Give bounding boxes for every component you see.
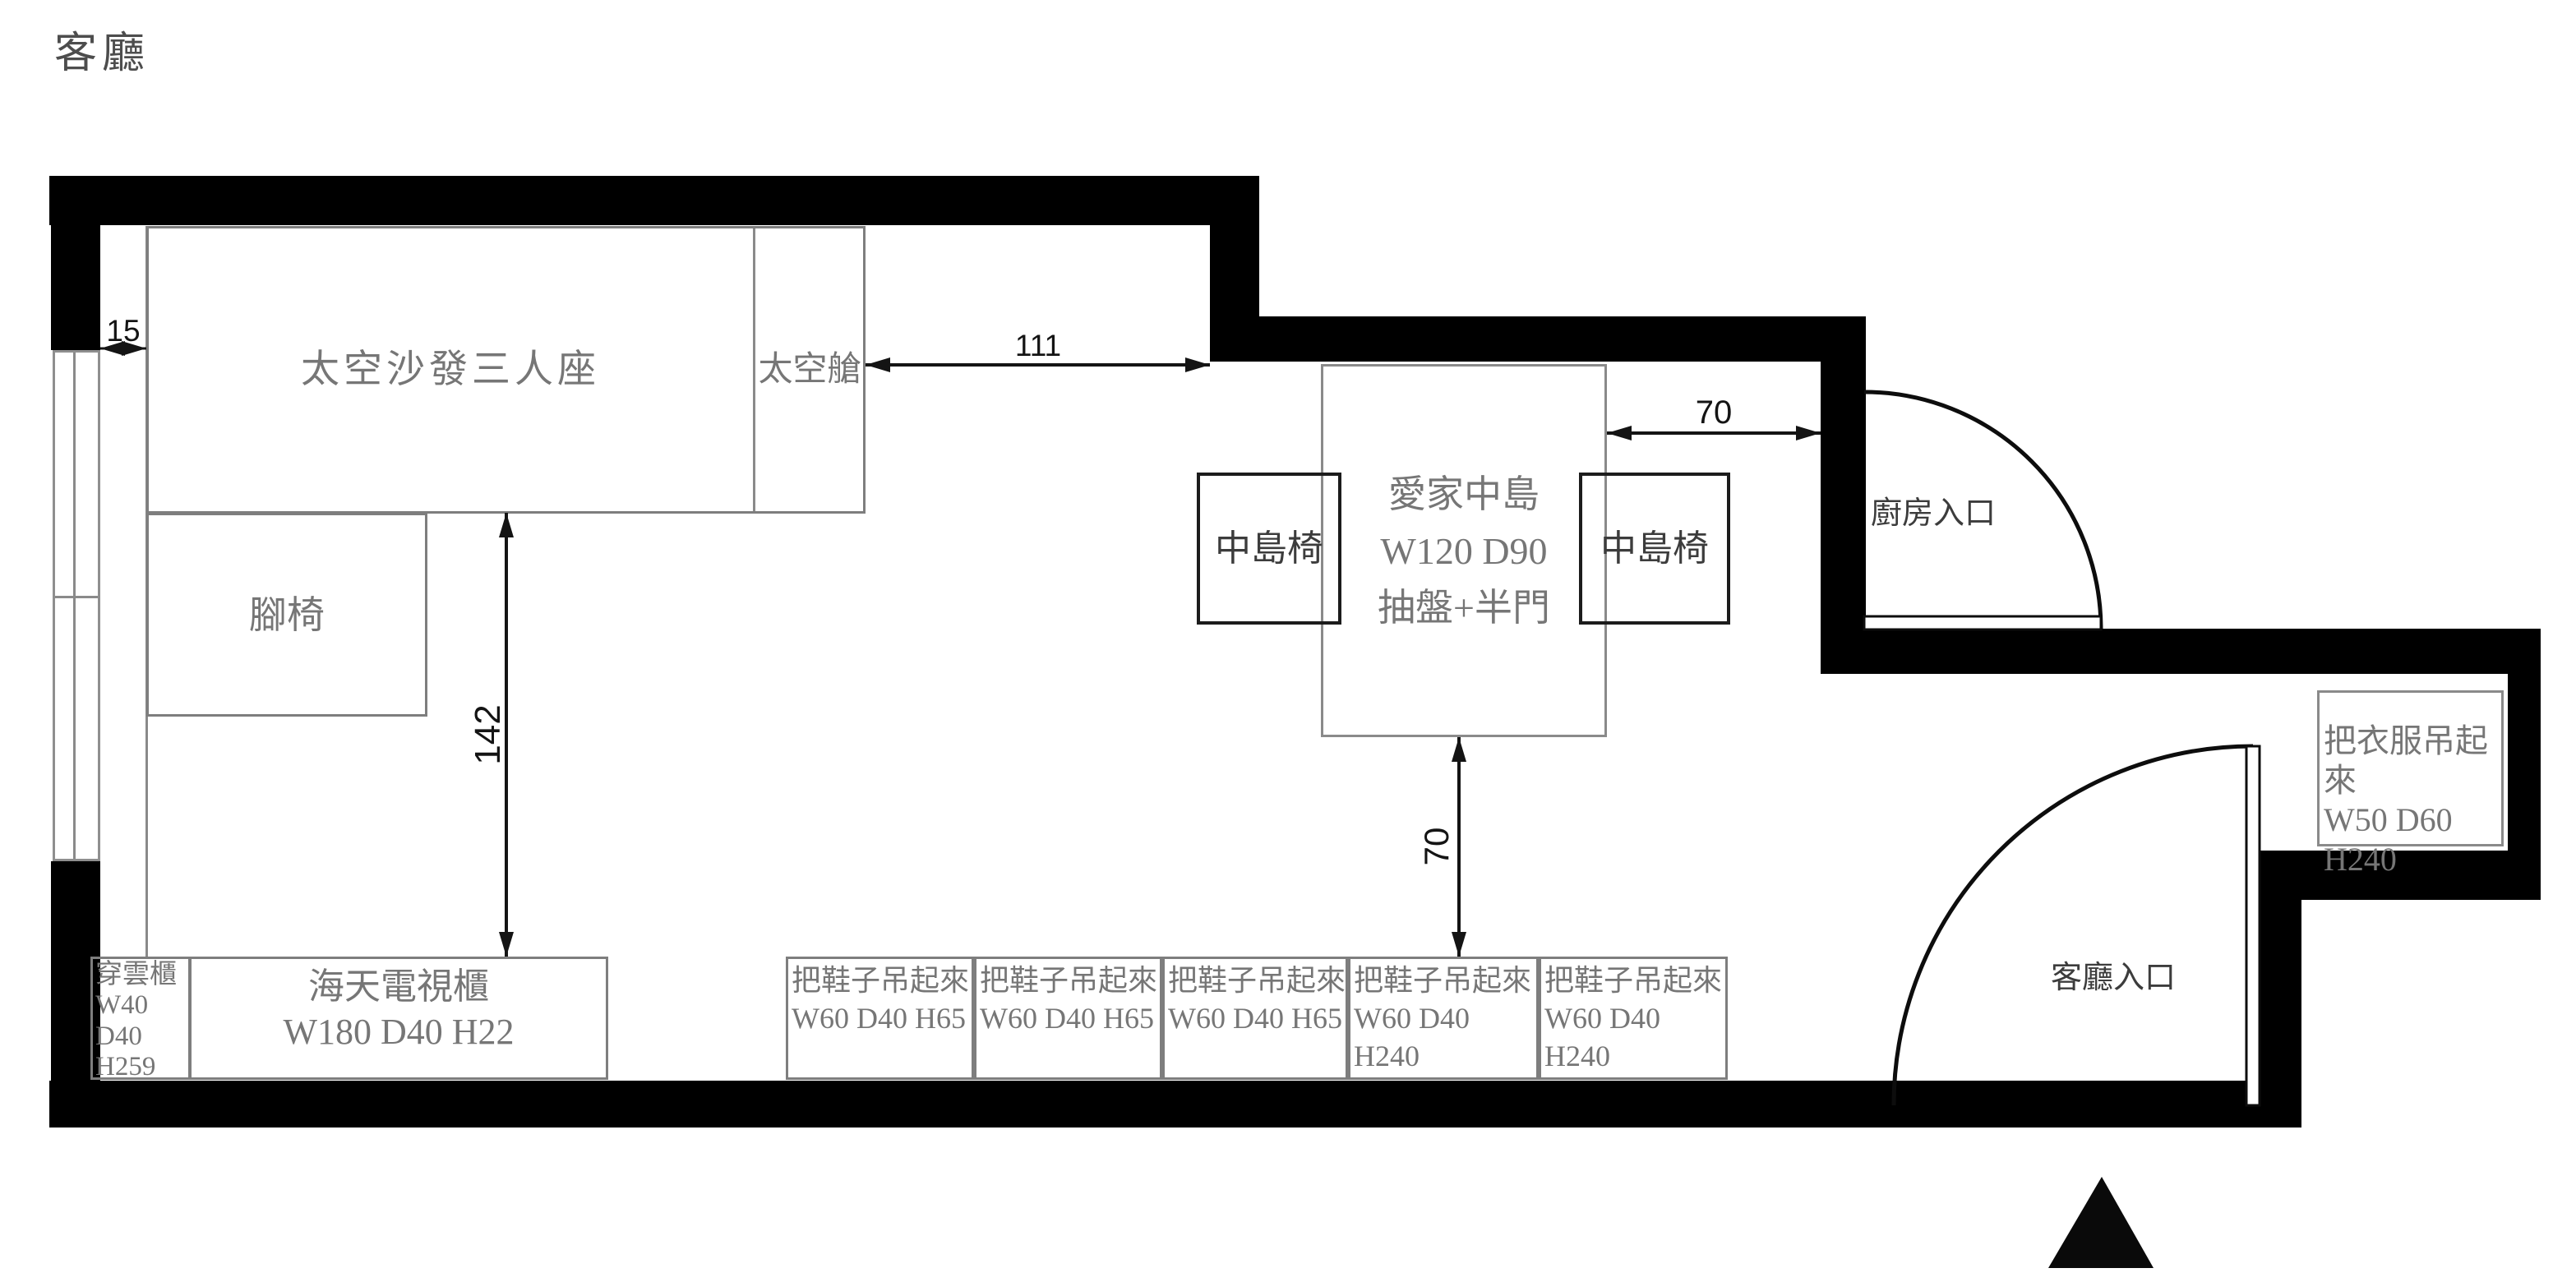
kitchen-door-swing-arc (1864, 392, 2101, 629)
living-door-leaf (2246, 746, 2260, 1105)
kitchen-door-leaf (1864, 616, 2101, 629)
entry-direction-triangle (2048, 1177, 2154, 1268)
floor-plan: 太空沙發三人座 太空艙 腳椅 愛家中島 W120 D90 抽盤+半門 中島椅 中… (0, 0, 2576, 1282)
plan-linework (0, 0, 2576, 1282)
page-title: 客廳 (54, 18, 150, 80)
living-door-swing-arc (1894, 746, 2253, 1105)
